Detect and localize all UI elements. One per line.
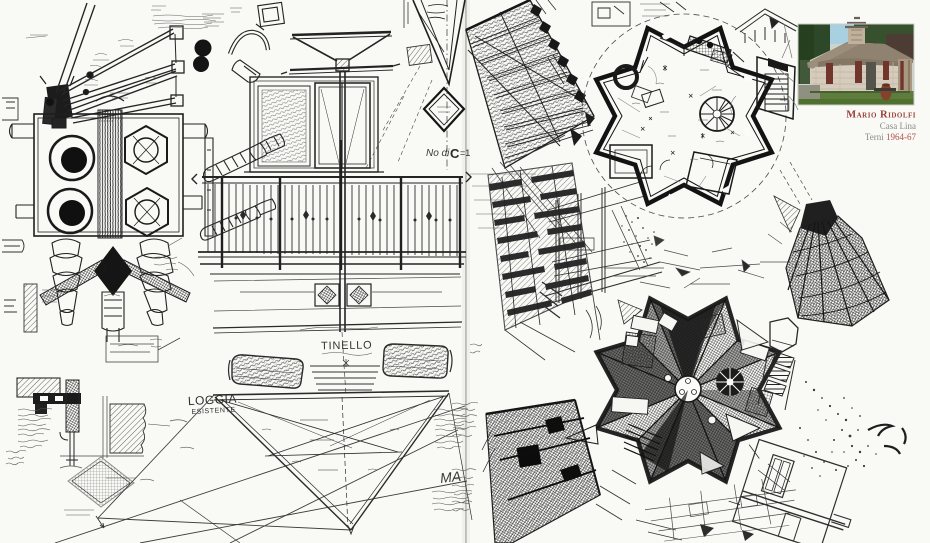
svg-text:Casa Lina: Casa Lina xyxy=(880,121,916,131)
svg-text:TINELLO: TINELLO xyxy=(321,339,373,352)
svg-text:No di: No di xyxy=(426,148,450,159)
svg-text:MA: MA xyxy=(439,468,462,486)
svg-text:=1: =1 xyxy=(460,148,470,158)
svg-text:C: C xyxy=(450,146,460,161)
svg-text:Mario Ridolfi: Mario Ridolfi xyxy=(846,110,916,121)
svg-text:Terni 1964-67: Terni 1964-67 xyxy=(865,132,917,142)
